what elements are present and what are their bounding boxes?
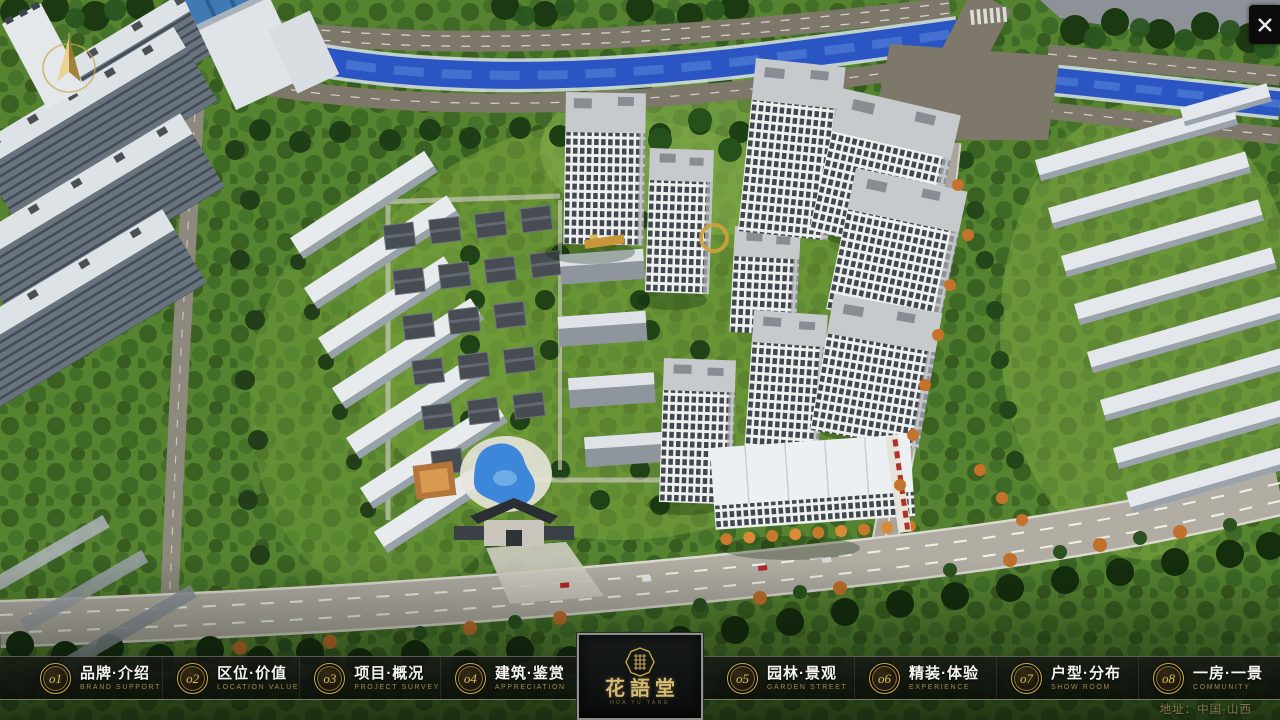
highrise-tower — [645, 148, 714, 294]
nav-sublabel: LOCATION VALUE — [217, 684, 299, 691]
nav-sublabel: SHOW ROOM — [1051, 684, 1121, 691]
project-address: 地址：中国·山西 — [1160, 701, 1252, 717]
nav-number: o3 — [323, 672, 336, 685]
close-icon — [1257, 17, 1273, 33]
nav-number-badge: o1 — [40, 663, 71, 694]
nav-sublabel: EXPERIENCE — [909, 684, 979, 691]
nav-label: 建筑·鉴赏 — [495, 666, 566, 681]
nav-number-badge: o6 — [869, 663, 900, 694]
nav-group-right: o5 园林·景观 GARDEN STREET o6 精装·体验 EXPERIEN… — [703, 656, 1280, 700]
nav-item-architecture[interactable]: o4 建筑·鉴赏 APPRECIATION — [440, 657, 577, 699]
nav-item-location-value[interactable]: o2 区位·价值 LOCATION VALUE — [162, 657, 299, 699]
nav-item-brand-intro[interactable]: o1 品牌·介绍 BRAND SUPPORT — [26, 657, 162, 699]
project-name: 花語堂 — [600, 679, 680, 699]
nav-number-badge: o3 — [314, 663, 345, 694]
nav-item-floorplan-distribution[interactable]: o7 户型·分布 SHOW ROOM — [996, 657, 1138, 699]
nav-number: o7 — [1020, 672, 1033, 685]
nav-label: 精装·体验 — [909, 666, 979, 681]
presentation-stage: o1 品牌·介绍 BRAND SUPPORT o2 区位·价值 LOCATION… — [0, 0, 1280, 720]
nav-sublabel: PROJECT SURVEY — [354, 684, 440, 691]
nav-number-badge: o8 — [1153, 663, 1184, 694]
nav-number-badge: o4 — [455, 663, 486, 694]
nav-number: o6 — [878, 672, 891, 685]
nav-label: 园林·景观 — [767, 666, 847, 681]
nav-sublabel: BRAND SUPPORT — [80, 684, 161, 691]
highrise-tower — [744, 310, 828, 455]
highrise-tower — [563, 92, 646, 245]
nav-sublabel: APPRECIATION — [495, 684, 566, 691]
seal-emblem-icon — [625, 647, 655, 677]
nav-label: 户型·分布 — [1051, 666, 1121, 681]
nav-number: o4 — [464, 672, 477, 685]
nav-number: o2 — [186, 672, 199, 685]
project-logo[interactable]: 花語堂 HUA YU TANG — [577, 633, 703, 720]
nav-item-garden-landscape[interactable]: o5 园林·景观 GARDEN STREET — [713, 657, 854, 699]
nav-label: 品牌·介绍 — [80, 666, 161, 681]
nav-number-badge: o2 — [177, 663, 208, 694]
nav-label: 项目·概况 — [354, 666, 440, 681]
nav-sublabel: GARDEN STREET — [767, 684, 847, 691]
compass-icon — [40, 32, 98, 98]
nav-number: o5 — [736, 672, 749, 685]
nav-number: o8 — [1162, 672, 1175, 685]
aerial-render — [0, 0, 1280, 720]
nav-label: 区位·价值 — [217, 666, 299, 681]
nav-item-interior-experience[interactable]: o6 精装·体验 EXPERIENCE — [854, 657, 996, 699]
nav-number: o1 — [49, 672, 62, 685]
project-name-latin: HUA YU TANG — [610, 701, 670, 706]
nav-number-badge: o5 — [727, 663, 758, 694]
nav-label: 一房·一景 — [1193, 666, 1263, 681]
nav-group-left: o1 品牌·介绍 BRAND SUPPORT o2 区位·价值 LOCATION… — [0, 656, 577, 700]
pool — [460, 436, 552, 512]
close-button[interactable] — [1249, 5, 1280, 44]
nav-item-project-survey[interactable]: o3 项目·概况 PROJECT SURVEY — [299, 657, 440, 699]
nav-sublabel: COMMUNITY — [1193, 684, 1263, 691]
nav-item-room-view[interactable]: o8 一房·一景 COMMUNITY — [1138, 657, 1280, 699]
nav-number-badge: o7 — [1011, 663, 1042, 694]
